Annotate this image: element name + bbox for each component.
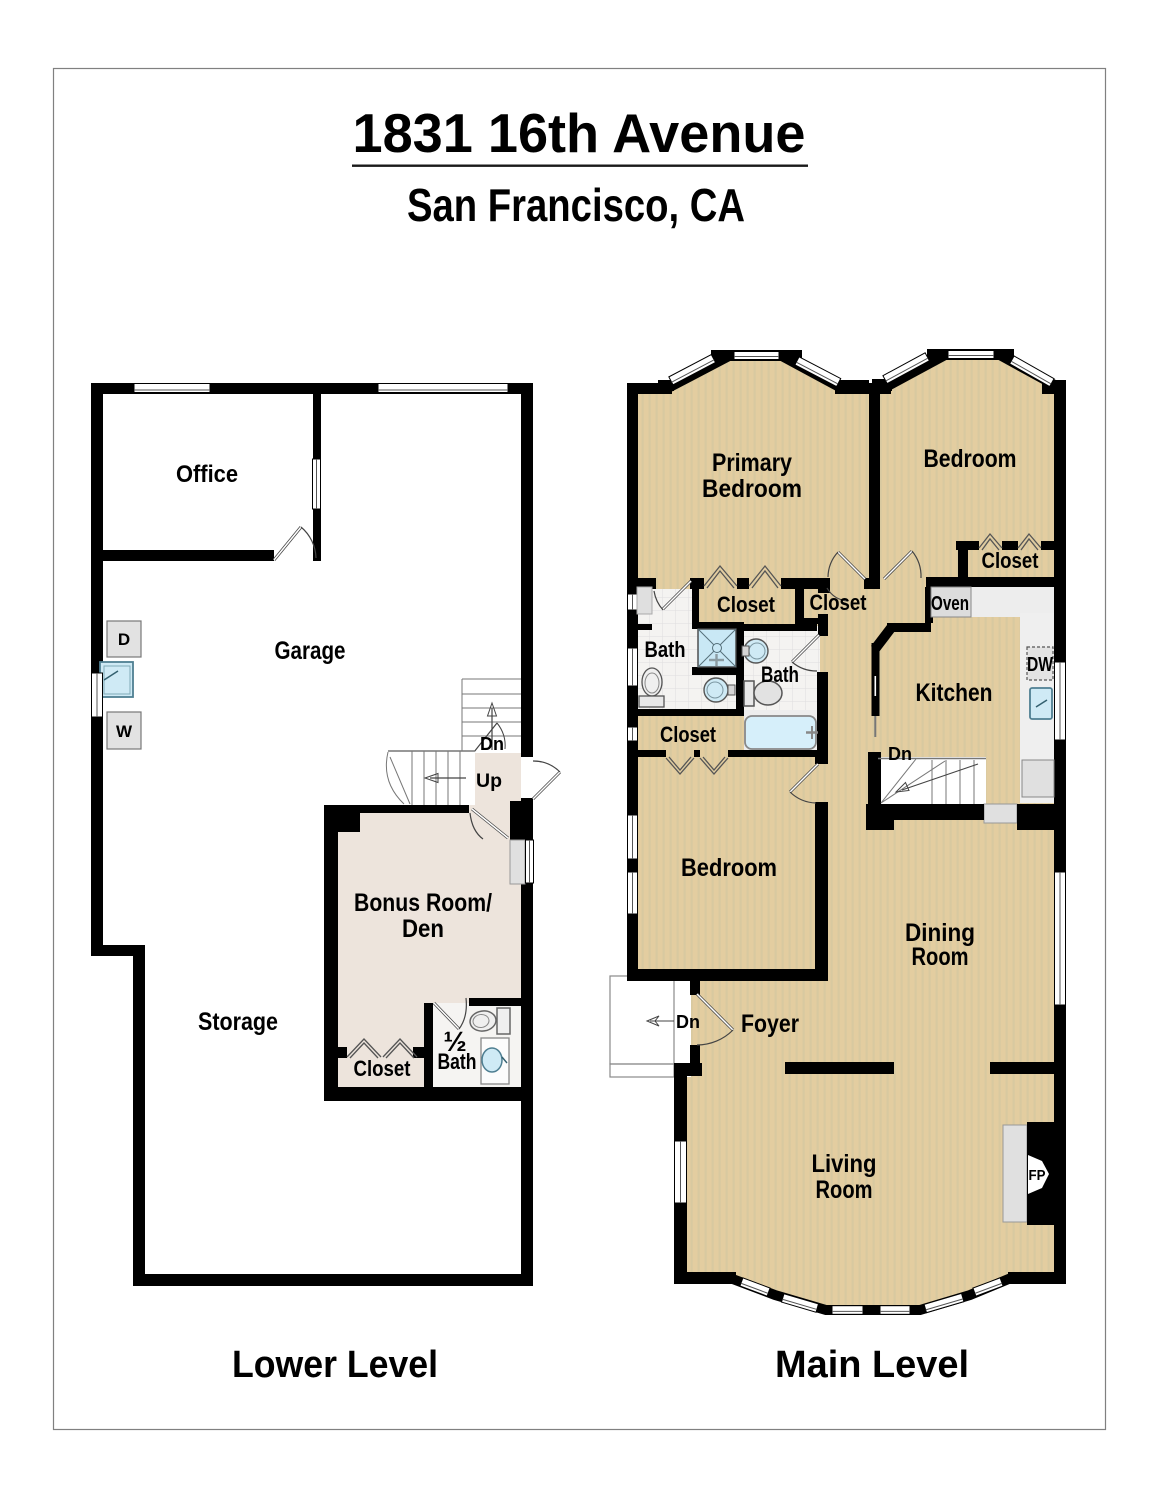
svg-text:W: W	[116, 722, 133, 741]
svg-text:Bedroom: Bedroom	[924, 445, 1017, 473]
svg-text:Room: Room	[912, 943, 969, 971]
svg-text:San Francisco, CA: San Francisco, CA	[407, 179, 745, 231]
svg-text:Closet: Closet	[354, 1056, 412, 1081]
svg-text:D: D	[118, 630, 130, 649]
svg-text:Room: Room	[816, 1176, 873, 1204]
svg-text:Dn: Dn	[480, 734, 504, 754]
svg-text:Foyer: Foyer	[741, 1010, 799, 1038]
svg-text:Storage: Storage	[198, 1008, 278, 1036]
svg-text:DW: DW	[1027, 654, 1053, 676]
svg-text:Up: Up	[476, 771, 502, 792]
svg-text:Kitchen: Kitchen	[916, 679, 993, 707]
svg-text:1831 16th Avenue: 1831 16th Avenue	[353, 102, 806, 164]
svg-text:Main Level: Main Level	[775, 1344, 969, 1386]
svg-text:Primary: Primary	[712, 449, 792, 477]
svg-text:Lower Level: Lower Level	[232, 1344, 438, 1386]
svg-text:Living: Living	[812, 1150, 877, 1178]
svg-text:Oven: Oven	[931, 593, 969, 615]
svg-text:Office: Office	[176, 461, 238, 488]
svg-text:Closet: Closet	[982, 548, 1040, 573]
svg-text:Bath: Bath	[761, 662, 799, 687]
svg-text:FP: FP	[1029, 1167, 1046, 1184]
svg-text:Bonus Room/: Bonus Room/	[354, 889, 492, 917]
svg-text:Bedroom: Bedroom	[702, 475, 802, 503]
svg-text:Closet: Closet	[717, 592, 776, 617]
svg-text:Garage: Garage	[275, 637, 346, 665]
svg-text:Dn: Dn	[676, 1012, 700, 1032]
svg-text:Bath: Bath	[645, 637, 686, 662]
svg-text:Bedroom: Bedroom	[681, 854, 777, 882]
svg-text:Closet: Closet	[660, 722, 717, 747]
svg-text:Dn: Dn	[888, 744, 912, 764]
svg-text:Closet: Closet	[810, 590, 868, 615]
svg-text:Den: Den	[402, 915, 444, 943]
svg-text:Bath: Bath	[438, 1049, 477, 1074]
